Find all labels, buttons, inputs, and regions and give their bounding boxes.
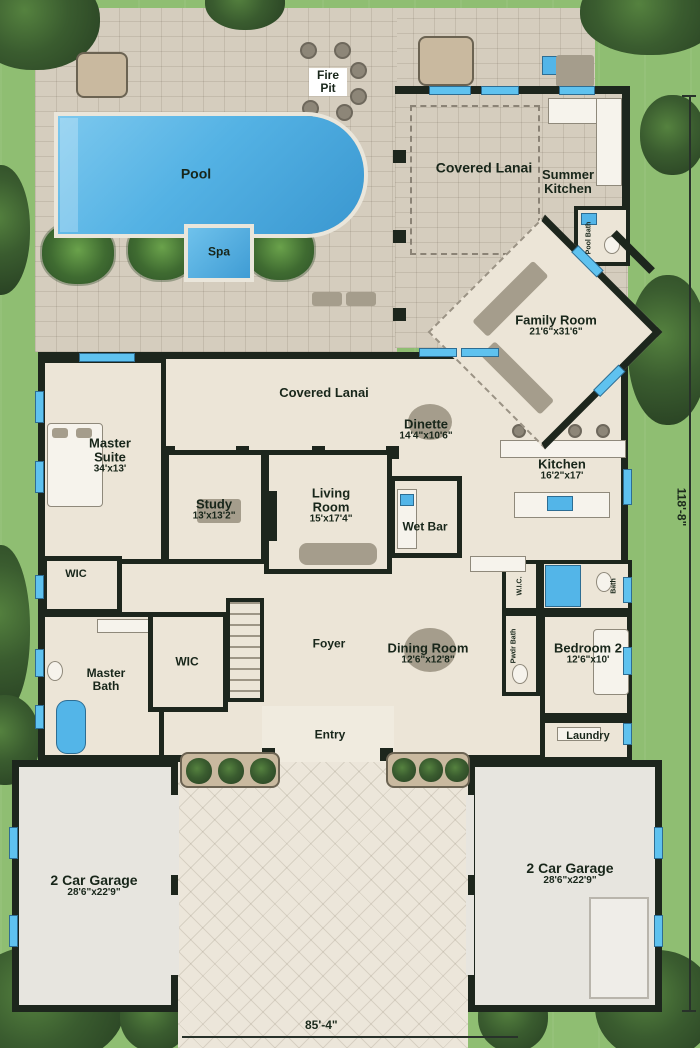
window bbox=[36, 576, 43, 598]
bath-bed2-room bbox=[540, 560, 632, 612]
chair bbox=[300, 42, 317, 59]
wic-master-room bbox=[42, 556, 122, 614]
range bbox=[470, 556, 526, 572]
dimension-tick bbox=[682, 1010, 696, 1012]
window bbox=[655, 916, 662, 946]
tree bbox=[640, 95, 700, 175]
room-label-fire-pit: Fire Pit bbox=[309, 68, 347, 96]
room-label-summer-kitchen: Summer Kitchen bbox=[537, 168, 599, 196]
window bbox=[10, 828, 17, 858]
dimension-line-width bbox=[182, 1036, 518, 1038]
room-label-wic-master: WIC bbox=[65, 569, 86, 581]
room-label-pool: Pool bbox=[181, 166, 211, 181]
lounger bbox=[312, 292, 342, 306]
dimension-tick bbox=[682, 95, 696, 97]
garage-door-opening bbox=[466, 895, 474, 975]
wet-bar-room bbox=[390, 476, 462, 558]
dimension-label-width: 85'-4" bbox=[305, 1018, 338, 1032]
window bbox=[624, 578, 631, 602]
window bbox=[10, 916, 17, 946]
room-label-garage-left: 2 Car Garage28'6"x22'9" bbox=[50, 873, 137, 899]
lanai-beam-line bbox=[410, 105, 540, 255]
kitchen-counter bbox=[500, 440, 626, 458]
room-label-living-room: Living Room15'x17'4" bbox=[305, 487, 357, 526]
lounger bbox=[346, 292, 376, 306]
toilet bbox=[47, 661, 63, 681]
shower bbox=[546, 566, 580, 606]
tree bbox=[580, 0, 700, 55]
entry-planter bbox=[386, 752, 470, 788]
room-label-pwdr-bath: Pwdr Bath bbox=[511, 629, 518, 664]
window bbox=[624, 648, 631, 674]
toilet bbox=[512, 664, 528, 684]
window bbox=[430, 87, 470, 94]
room-label-entry: Entry bbox=[315, 729, 346, 742]
dimension-line-depth bbox=[689, 96, 691, 1012]
room-label-covered-lanai-top: Covered Lanai bbox=[436, 160, 532, 175]
lanai-column bbox=[393, 308, 406, 321]
tree bbox=[0, 545, 30, 715]
window bbox=[655, 828, 662, 858]
room-label-garage-right: 2 Car Garage28'6"x22'9" bbox=[526, 861, 613, 887]
window bbox=[80, 354, 134, 361]
bar-stool bbox=[568, 424, 582, 438]
sink bbox=[401, 495, 413, 505]
room-label-spa: Spa bbox=[208, 246, 230, 259]
room-label-wic-bed2: W.I.C. bbox=[517, 576, 524, 595]
chair bbox=[350, 62, 367, 79]
window bbox=[36, 392, 43, 422]
garage-door-opening bbox=[171, 895, 179, 975]
window bbox=[624, 470, 631, 504]
bar-stool bbox=[596, 424, 610, 438]
room-label-study: Study13'x13'2" bbox=[193, 498, 236, 523]
garage-door-opening bbox=[171, 795, 179, 875]
room-label-bath-bed2: Bath bbox=[611, 578, 618, 594]
room-label-laundry: Laundry bbox=[566, 731, 609, 743]
sofa bbox=[299, 543, 377, 565]
room-label-family-room: Family Room21'6"x31'6" bbox=[515, 314, 597, 339]
room-label-kitchen: Kitchen16'2"x17' bbox=[538, 458, 586, 483]
stairs bbox=[226, 598, 264, 702]
room-label-wet-bar: Wet Bar bbox=[402, 521, 447, 534]
room-label-covered-lanai-mid: Covered Lanai bbox=[279, 386, 369, 400]
media-wall bbox=[267, 491, 277, 541]
chair bbox=[302, 100, 319, 117]
sink bbox=[548, 497, 572, 510]
storage-nook bbox=[589, 897, 649, 999]
window bbox=[560, 87, 594, 94]
window bbox=[482, 87, 518, 94]
garage-door-opening bbox=[466, 795, 474, 875]
floor-plan-canvas: Fire Pit Pool Spa Covered Lanai Summer K… bbox=[0, 0, 700, 1048]
room-label-bedroom2: Bedroom 212'6"x10' bbox=[554, 642, 622, 667]
room-label-dinette: Dinette14'4"x10'6" bbox=[399, 418, 452, 443]
dimension-label-depth: 118'-8" bbox=[674, 488, 688, 527]
window bbox=[36, 650, 43, 676]
lanai-column bbox=[393, 150, 406, 163]
tree bbox=[0, 165, 30, 295]
summer-kitchen-counter bbox=[596, 98, 622, 186]
room-label-foyer: Foyer bbox=[313, 638, 346, 651]
pwdr-bath-room bbox=[502, 612, 540, 696]
entry-planter bbox=[180, 752, 280, 788]
window bbox=[36, 706, 43, 728]
room-label-wic-hall: WIC bbox=[175, 656, 198, 669]
chair bbox=[334, 42, 351, 59]
sliding-door bbox=[420, 349, 456, 356]
room-label-dining-room: Dining Room12'6"x12'8" bbox=[388, 642, 469, 667]
driveway bbox=[178, 762, 468, 1048]
sliding-door bbox=[462, 349, 498, 356]
pool-steps bbox=[60, 118, 78, 232]
chair bbox=[336, 104, 353, 121]
bathtub bbox=[57, 701, 85, 753]
chair bbox=[350, 88, 367, 105]
window bbox=[624, 724, 631, 744]
room-label-master-suite: Master Suite34'x13' bbox=[79, 437, 141, 476]
planter-box bbox=[418, 36, 474, 86]
planter-box bbox=[76, 52, 128, 98]
room-label-master-bath: Master Bath bbox=[81, 667, 131, 693]
room-label-pool-bath: Pool Bath bbox=[586, 222, 593, 255]
exterior-wall bbox=[622, 86, 630, 218]
lanai-column bbox=[393, 230, 406, 243]
seating bbox=[556, 55, 594, 87]
window bbox=[36, 462, 43, 492]
